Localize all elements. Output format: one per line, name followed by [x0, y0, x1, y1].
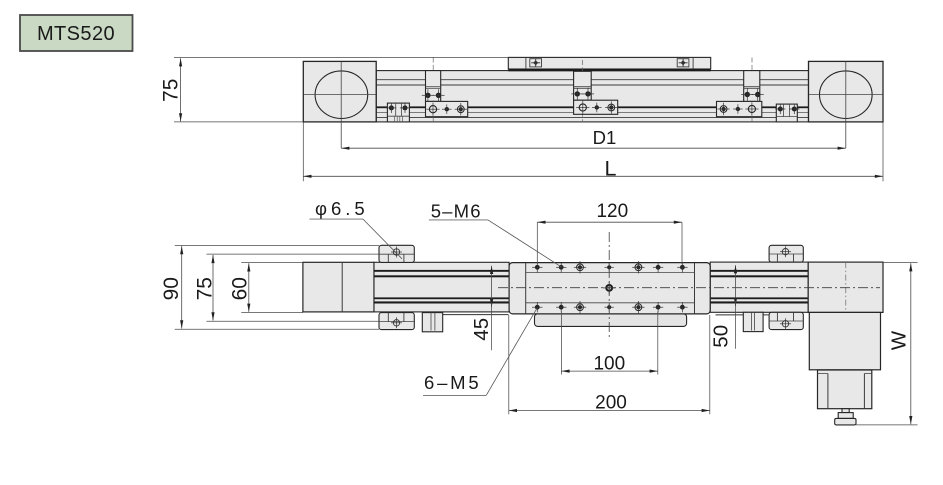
svg-text:6–M5: 6–M5 [424, 372, 481, 393]
svg-text:45: 45 [470, 318, 493, 341]
svg-text:W: W [888, 330, 911, 350]
svg-text:200: 200 [595, 392, 627, 413]
svg-text:60: 60 [229, 277, 252, 300]
svg-text:φ6.5: φ6.5 [315, 198, 369, 219]
svg-text:120: 120 [596, 201, 628, 222]
svg-text:D1: D1 [593, 127, 617, 148]
svg-text:75: 75 [194, 277, 217, 300]
svg-text:5–M6: 5–M6 [431, 200, 482, 221]
svg-text:100: 100 [593, 354, 625, 375]
svg-text:L: L [605, 156, 617, 180]
svg-text:75: 75 [160, 79, 183, 102]
svg-text:90: 90 [160, 277, 183, 300]
svg-text:50: 50 [710, 325, 733, 348]
svg-text:MTS520: MTS520 [37, 23, 115, 45]
